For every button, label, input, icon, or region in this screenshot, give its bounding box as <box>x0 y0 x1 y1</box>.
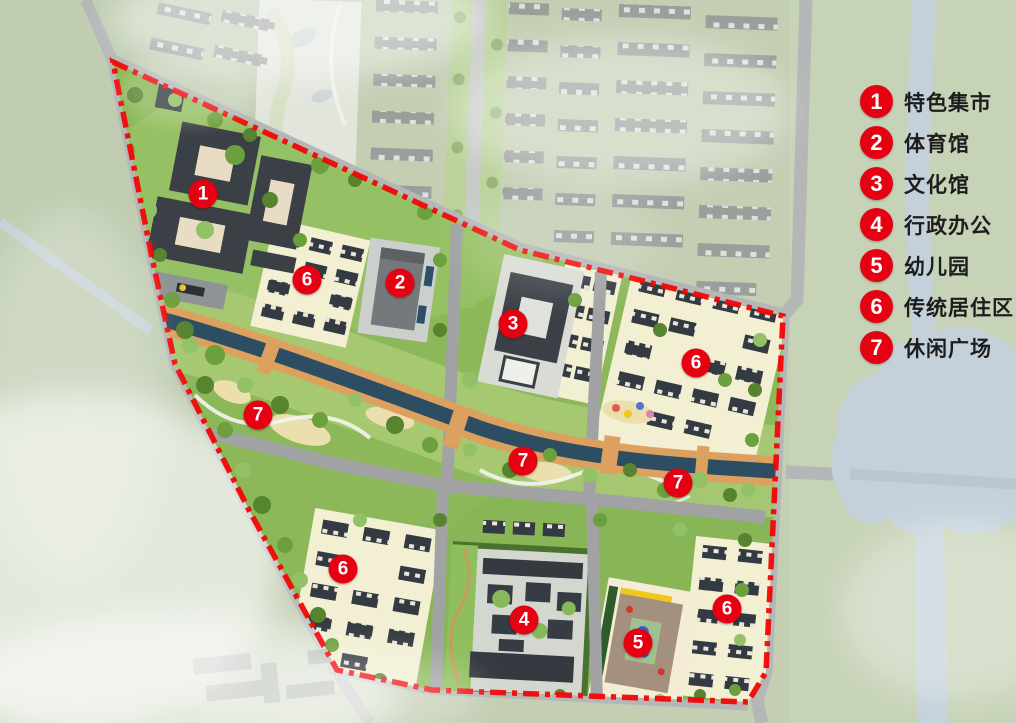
legend-item: 2 体育馆 <box>860 126 1014 159</box>
legend-item-label: 体育馆 <box>904 128 970 158</box>
site-plan-page: 123456666777 1 特色集市 2 体育馆 3 文化馆 4 行政办公 5… <box>0 0 1016 723</box>
legend-item: 6 传统居住区 <box>860 290 1014 323</box>
legend: 1 特色集市 2 体育馆 3 文化馆 4 行政办公 5 幼儿园 6 传统居住区 … <box>860 85 1014 364</box>
legend-item-label: 休闲广场 <box>904 333 992 363</box>
legend-number-badge: 6 <box>860 290 893 323</box>
legend-item-label: 幼儿园 <box>904 251 970 281</box>
legend-item: 7 休闲广场 <box>860 331 1014 364</box>
legend-number-badge: 4 <box>860 208 893 241</box>
legend-number-badge: 5 <box>860 249 893 282</box>
legend-item: 4 行政办公 <box>860 208 1014 241</box>
legend-number-badge: 7 <box>860 331 893 364</box>
legend-item-label: 文化馆 <box>904 169 970 199</box>
legend-item: 3 文化馆 <box>860 167 1014 200</box>
legend-item-label: 特色集市 <box>904 87 992 117</box>
legend-item-label: 行政办公 <box>904 210 992 240</box>
legend-number-badge: 2 <box>860 126 893 159</box>
legend-item: 5 幼儿园 <box>860 249 1014 282</box>
gymnasium <box>357 238 440 343</box>
legend-item: 1 特色集市 <box>860 85 1014 118</box>
legend-number-badge: 3 <box>860 167 893 200</box>
legend-item-label: 传统居住区 <box>904 292 1014 322</box>
legend-number-badge: 1 <box>860 85 893 118</box>
